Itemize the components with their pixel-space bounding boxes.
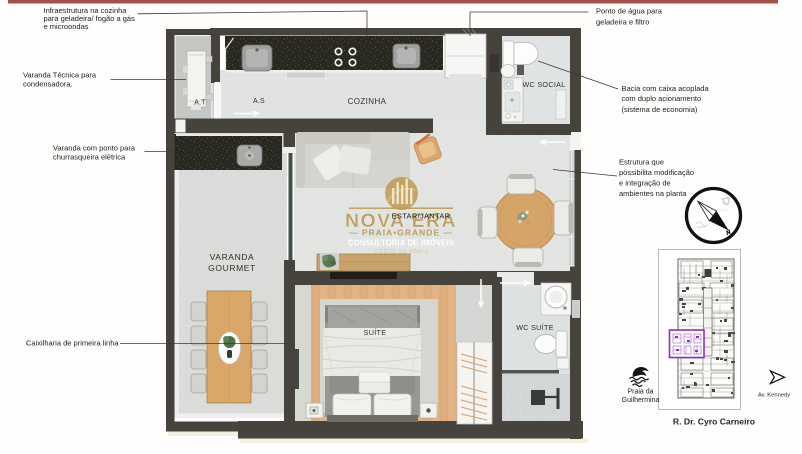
svg-text:VARANDA: VARANDA: [210, 252, 255, 262]
svg-text:churrasqueira elétrica: churrasqueira elétrica: [53, 153, 126, 162]
svg-text:R. Dr. Cyro Carneiro: R. Dr. Cyro Carneiro: [673, 417, 755, 427]
svg-text:Estrutura que: Estrutura que: [619, 158, 664, 167]
svg-text:A.T: A.T: [194, 100, 206, 107]
svg-text:GOURMET: GOURMET: [208, 263, 256, 273]
svg-text:Ponto de água para: Ponto de água para: [596, 7, 663, 16]
svg-text:SUÍTE: SUÍTE: [364, 328, 387, 337]
svg-text:CONSULTORIA DE IMÓVEIS: CONSULTORIA DE IMÓVEIS: [348, 239, 454, 248]
svg-text:e microondas: e microondas: [44, 22, 89, 31]
svg-text:com duplo acionamento: com duplo acionamento: [622, 94, 702, 103]
svg-text:CRECI 28.800-J: CRECI 28.800-J: [374, 249, 429, 256]
svg-text:Praia da: Praia da: [627, 389, 653, 396]
svg-text:WC SUÍTE: WC SUÍTE: [516, 323, 554, 332]
svg-text:Varanda Técnica para: Varanda Técnica para: [23, 71, 97, 80]
svg-text:WC SOCIAL: WC SOCIAL: [522, 80, 565, 89]
svg-text:Varanda com ponto para: Varanda com ponto para: [53, 144, 136, 153]
svg-text:possibilita modificação: possibilita modificação: [619, 168, 694, 177]
svg-text:ESTAR/JANTAR: ESTAR/JANTAR: [392, 212, 451, 221]
svg-text:(sistema de economia): (sistema de economia): [622, 105, 698, 114]
svg-text:Guilhermina: Guilhermina: [622, 397, 660, 404]
svg-text:geladeira e filtro: geladeira e filtro: [596, 18, 649, 27]
svg-text:COZINHA: COZINHA: [348, 97, 387, 106]
svg-text:— PRAIA•GRANDE —: — PRAIA•GRANDE —: [349, 228, 453, 238]
svg-text:condensadora.: condensadora.: [23, 80, 73, 89]
svg-text:Av. Kennedy: Av. Kennedy: [758, 393, 790, 399]
svg-text:ambientes na planta: ambientes na planta: [619, 189, 687, 198]
svg-text:Bacia com caixa acoplada: Bacia com caixa acoplada: [622, 84, 710, 93]
svg-text:Caixilharia de primeira linha: Caixilharia de primeira linha: [26, 339, 119, 348]
svg-text:e integração de: e integração de: [619, 179, 671, 188]
svg-text:A.S: A.S: [253, 98, 265, 105]
